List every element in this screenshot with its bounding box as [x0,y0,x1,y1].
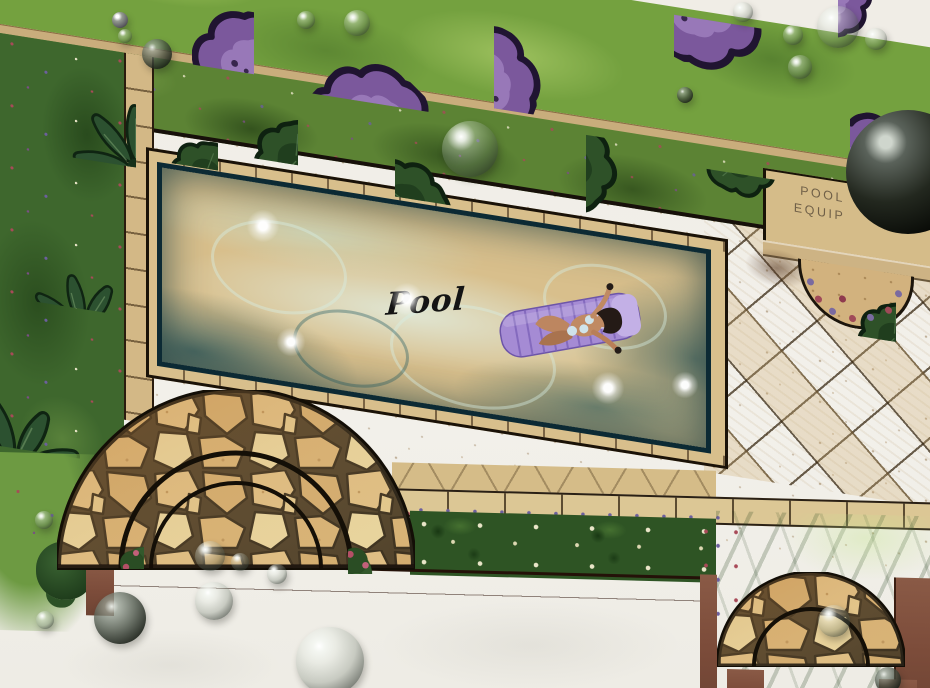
water-sparkle [671,371,699,399]
water-droplet [142,39,172,69]
water-droplet [231,553,249,571]
water-droplet [818,605,850,637]
water-droplet [344,10,370,36]
water-droplet [118,29,132,43]
water-droplet [195,541,225,571]
paper-blotch [380,600,680,688]
water-droplet [865,28,887,50]
garden-wall-right-strip [700,574,717,688]
flagstone-landing-semicircle [717,572,905,667]
water-droplet [442,121,498,177]
water-droplet [817,6,859,48]
water-sparkle [246,209,280,243]
rose-bush [80,505,144,569]
water-droplet [36,611,54,629]
water-sparkle [276,327,306,357]
water-droplet [783,25,803,45]
water-droplet [297,11,315,29]
water-droplet [195,582,233,620]
rose-bush [348,504,418,574]
water-droplet [296,627,364,688]
wall-block [727,669,764,688]
water-sparkle [591,371,625,405]
water-droplet [677,87,693,103]
water-droplet [875,667,901,688]
water-droplet [35,511,53,529]
water-sparkle [390,282,424,316]
water-droplet [788,55,812,79]
water-droplet [112,12,128,28]
water-droplet [733,2,753,22]
landscape-plan-rendering: POOL EQUIP [0,0,930,688]
water-droplet [267,564,287,584]
